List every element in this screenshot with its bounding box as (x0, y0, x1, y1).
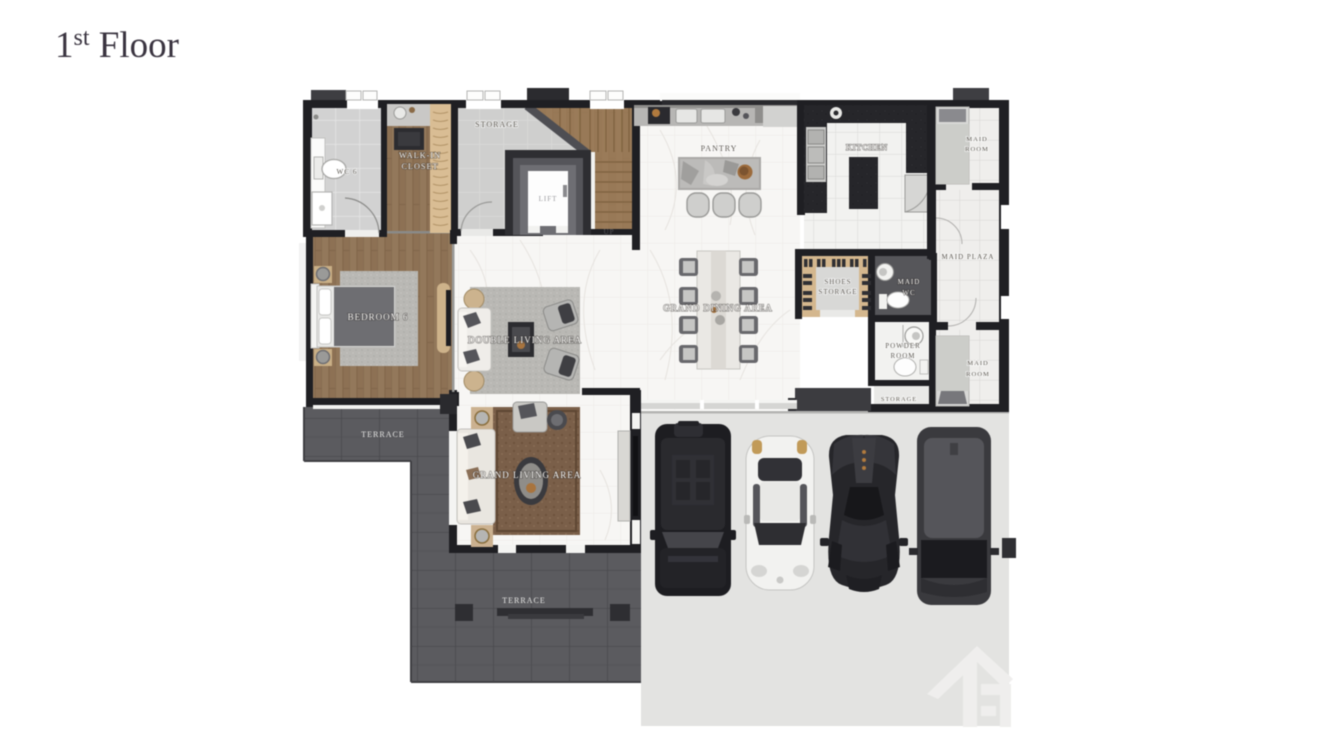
svg-text:WC 6: WC 6 (337, 168, 358, 176)
svg-text:SHOES: SHOES (824, 278, 851, 286)
svg-text:STORAGE: STORAGE (881, 396, 917, 403)
svg-text:MAID: MAID (898, 278, 921, 286)
svg-text:KITCHEN: KITCHEN (846, 143, 888, 152)
svg-text:ROOM: ROOM (966, 371, 990, 378)
svg-text:DOUBLE LIVING AREA: DOUBLE LIVING AREA (468, 335, 582, 345)
svg-text:UP: UP (604, 228, 615, 236)
svg-text:GRAND DINING AREA: GRAND DINING AREA (663, 303, 773, 313)
svg-text:GRAND LIVING AREA: GRAND LIVING AREA (473, 470, 582, 480)
svg-text:ROOM: ROOM (965, 146, 989, 153)
svg-text:LIFT: LIFT (539, 195, 558, 203)
svg-text:WC: WC (902, 289, 915, 297)
svg-text:TERRACE: TERRACE (361, 430, 404, 439)
svg-text:PANTRY: PANTRY (701, 144, 738, 153)
svg-text:MAID: MAID (966, 136, 988, 143)
svg-text:MAID: MAID (967, 360, 989, 367)
svg-text:MAID PLAZA: MAID PLAZA (942, 253, 995, 261)
svg-text:WALK-IN: WALK-IN (399, 151, 441, 160)
svg-text:BEDROOM 6: BEDROOM 6 (348, 312, 409, 322)
svg-text:POWDER: POWDER (885, 342, 921, 350)
svg-text:STORAGE: STORAGE (475, 120, 519, 129)
svg-text:STORAGE: STORAGE (818, 288, 857, 296)
svg-text:ROOM: ROOM (890, 352, 915, 360)
svg-text:TERRACE: TERRACE (502, 596, 545, 605)
svg-text:CLOSET: CLOSET (402, 162, 439, 171)
